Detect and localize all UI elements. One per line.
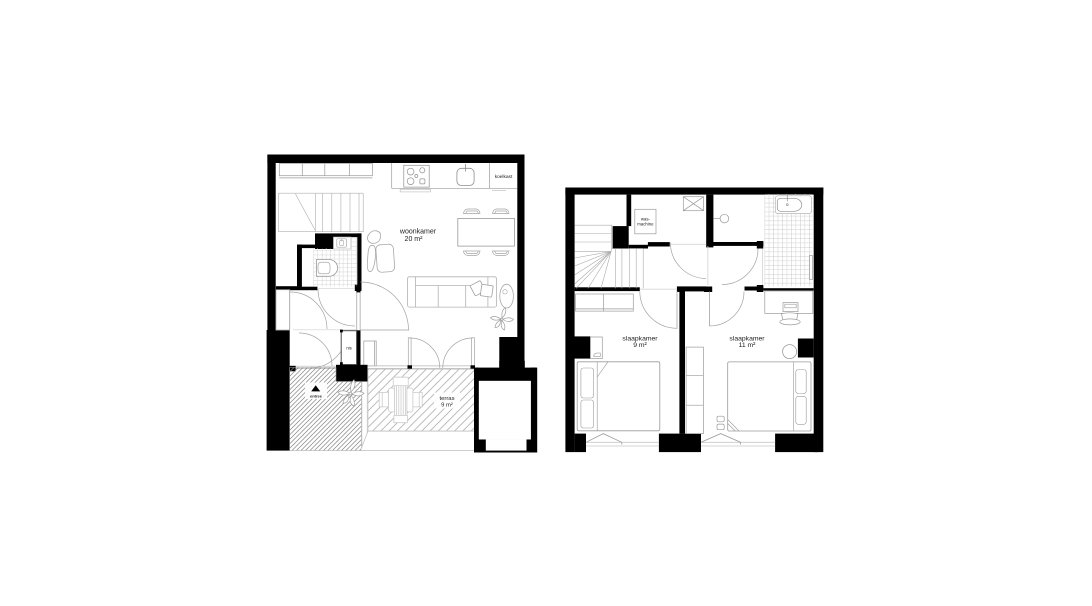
svg-text:entree: entree <box>310 393 323 398</box>
svg-text:koelkast: koelkast <box>495 174 513 180</box>
svg-text:9 m²: 9 m² <box>441 403 453 409</box>
svg-text:woonkamer: woonkamer <box>399 229 437 236</box>
svg-text:was-: was- <box>641 216 651 221</box>
svg-text:nis: nis <box>346 345 351 350</box>
svg-text:20 m²: 20 m² <box>405 236 424 243</box>
svg-text:11 m²: 11 m² <box>739 342 757 349</box>
svg-text:terras: terras <box>439 396 454 402</box>
svg-text:9 m²: 9 m² <box>633 342 647 349</box>
svg-text:machine: machine <box>637 222 654 227</box>
